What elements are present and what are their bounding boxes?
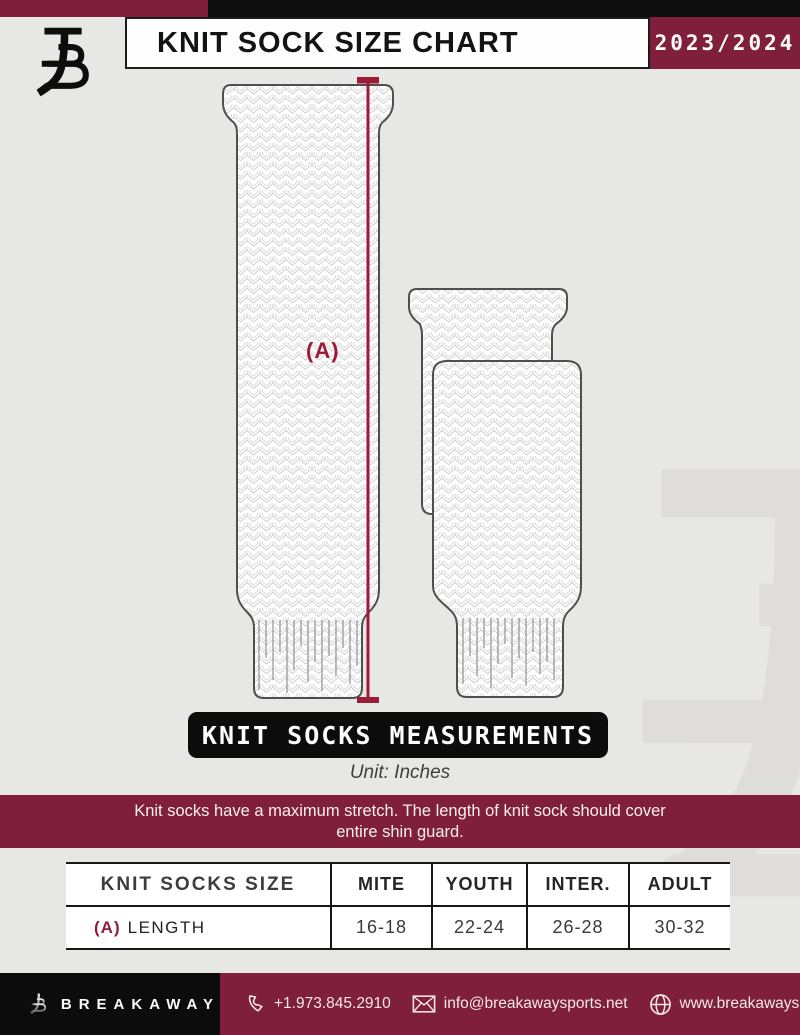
phone-icon [244, 993, 266, 1015]
row-label-length: (A) LENGTH [66, 907, 330, 948]
knit-socks-illustration [170, 70, 630, 720]
col-header-mite: MITE [330, 864, 431, 905]
length-adult: 30-32 [628, 907, 730, 948]
length-mite: 16-18 [330, 907, 431, 948]
length-youth: 22-24 [431, 907, 526, 948]
footer-email[interactable]: info@breakawaysports.net [412, 994, 628, 1014]
col-header-inter: INTER. [526, 864, 628, 905]
footer-brand-name: BREAKAWAY [61, 996, 220, 1013]
col-header-youth: YOUTH [431, 864, 526, 905]
measurements-banner: KNIT SOCKS MEASUREMENTS [188, 712, 608, 758]
footer-email-text: info@breakawaysports.net [444, 995, 628, 1013]
footer-contact-block: +1.973.845.2910 info@breakawaysports.net… [220, 973, 800, 1035]
footer-website[interactable]: www.breakawaysports.net [649, 993, 800, 1016]
page-title: KNIT SOCK SIZE CHART [157, 27, 519, 60]
notice-line-2: entire shin guard. [336, 822, 464, 843]
knit-sock-size-chart-page: KNIT SOCK SIZE CHART 2023/2024 [0, 0, 800, 1035]
size-table: KNIT SOCKS SIZE MITE YOUTH INTER. ADULT … [66, 862, 730, 950]
footer-brand-block: BREAKAWAY [0, 973, 220, 1035]
envelope-icon [412, 994, 436, 1014]
unit-note: Unit: Inches [0, 762, 800, 784]
top-strip-maroon [0, 0, 208, 17]
footer: BREAKAWAY +1.973.845.2910 info@breakaway… [0, 973, 800, 1035]
footer-phone[interactable]: +1.973.845.2910 [244, 993, 391, 1015]
globe-icon [649, 993, 672, 1016]
col-header-adult: ADULT [628, 864, 730, 905]
title-band: KNIT SOCK SIZE CHART [125, 17, 650, 69]
breakaway-logo [22, 22, 98, 104]
season-badge: 2023/2024 [650, 17, 800, 69]
stretch-notice: Knit socks have a maximum stretch. The l… [0, 795, 800, 848]
size-table-header-row: KNIT SOCKS SIZE MITE YOUTH INTER. ADULT [66, 864, 730, 907]
top-strip-black [208, 0, 800, 17]
size-table-length-row: (A) LENGTH 16-18 22-24 26-28 30-32 [66, 907, 730, 948]
breakaway-footer-logo [26, 982, 49, 1026]
sock-folded-front [433, 361, 581, 697]
notice-line-1: Knit socks have a maximum stretch. The l… [134, 801, 666, 822]
row-label-text: LENGTH [128, 918, 206, 938]
length-inter: 26-28 [526, 907, 628, 948]
footer-website-text: www.breakawaysports.net [680, 995, 800, 1013]
dimension-a-label: (A) [306, 338, 340, 364]
col-header-size: KNIT SOCKS SIZE [66, 864, 330, 905]
row-label-a-prefix: (A) [94, 918, 121, 938]
footer-phone-text: +1.973.845.2910 [274, 995, 391, 1013]
